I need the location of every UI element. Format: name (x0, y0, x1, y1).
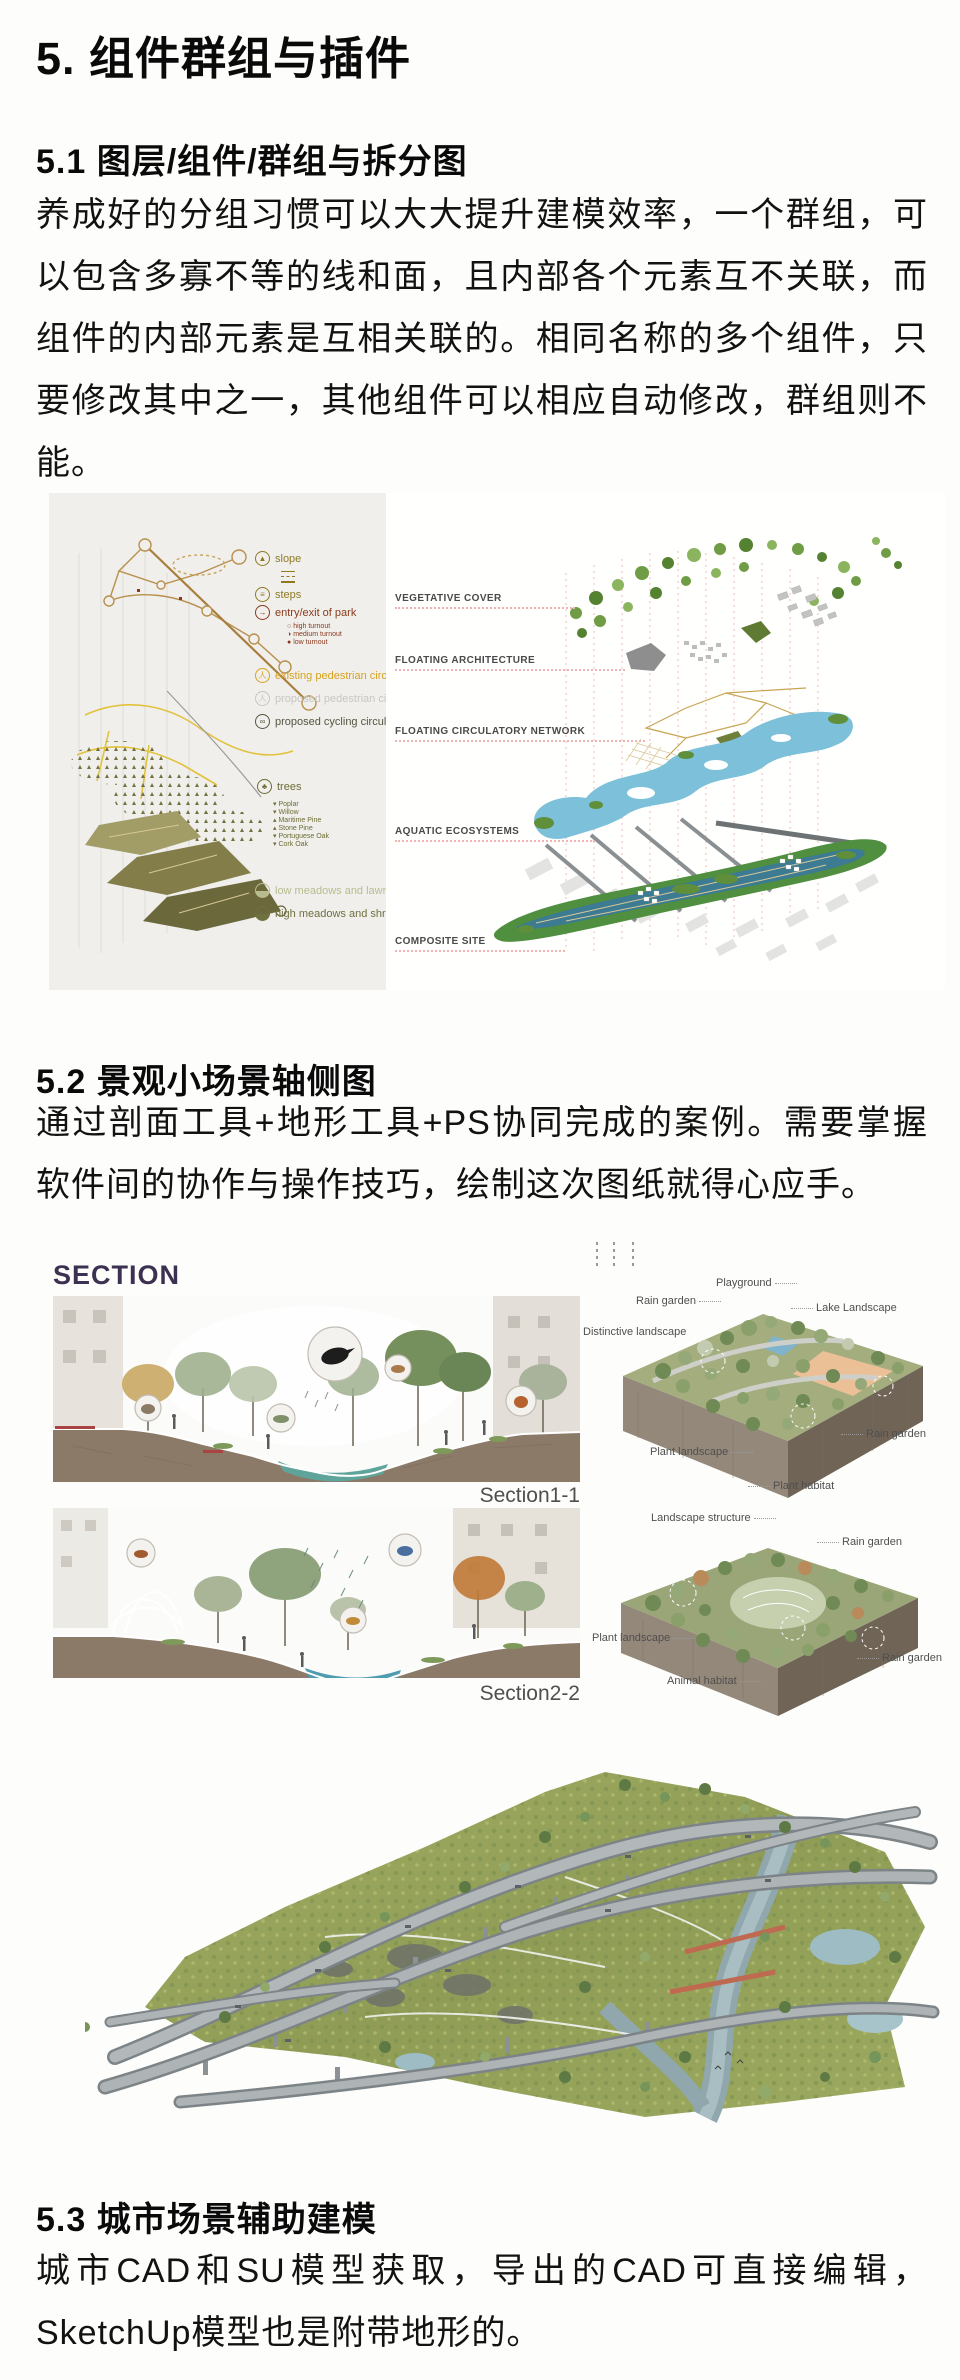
dotted-mark (632, 1242, 634, 1268)
layer-label-vegetative-cover: VEGETATIVE COVER (395, 593, 502, 604)
label-plant-habitat: Plant habitat (745, 1480, 834, 1492)
layer-label-composite-site: COMPOSITE SITE (395, 936, 486, 947)
leader-dots (731, 1452, 753, 1453)
label-plant-landscape: Plant landscape (650, 1446, 756, 1458)
legend-item-low-meadows: low meadows and lawns (255, 883, 394, 898)
section-53-title: 5.3 城市场景辅助建模 (36, 2192, 377, 2241)
label-landscape-structure: Landscape structure (651, 1512, 779, 1524)
legend-species-poplar: ▾ Poplar (273, 801, 299, 809)
pedestrian-icon: 人 (255, 668, 270, 683)
label-rain-garden: Rain garden (636, 1295, 724, 1307)
figure-section-drawings[interactable]: SECTION (53, 1240, 945, 1718)
label-plant-landscape: Plant landscape (592, 1632, 698, 1644)
bicycle-icon: ∞ (255, 714, 270, 729)
label-rain-garden: Rain garden (854, 1652, 942, 1664)
legend-species-maritime-pine: ▴ Maritime Pine (273, 817, 321, 825)
legend-species-stone-pine: ▴ Stone Pine (273, 825, 313, 833)
label-lake-landscape: Lake Landscape (788, 1302, 897, 1314)
legend-turnout-medium: ◑ medium turnout (287, 631, 342, 639)
legend-item-slope: ▲ slope (255, 551, 301, 566)
label-animal-habitat: Animal habitat (667, 1675, 765, 1687)
steps-icon: ≡ (255, 587, 270, 602)
section-51-title: 5.1 图层/组件/群组与拆分图 (36, 134, 468, 183)
slope-grade-mark (281, 581, 295, 583)
label-distinctive-landscape: Distinctive landscape (583, 1326, 686, 1338)
section-53-paragraph: 城市CAD和SU模型获取，导出的CAD可直接编辑，SketchUp模型也是附带地… (36, 2240, 928, 2364)
figure-highway-interchange[interactable] (85, 1757, 945, 2147)
leader-dots (841, 1434, 863, 1435)
pedestrian-icon: 人 (255, 691, 270, 706)
section-1-1-caption: Section1-1 (413, 1484, 580, 1508)
legend-species-cork-oak: ▾ Cork Oak (273, 841, 308, 849)
layer-label-floating-circulatory-network: FLOATING CIRCULATORY NETWORK (395, 726, 585, 737)
legend-turnout-low: ● low turnout (287, 639, 327, 647)
legend-item-high-meadows: high meadows and shrubs (255, 906, 403, 921)
leader-dots (673, 1638, 695, 1639)
meadow-icon (255, 883, 270, 898)
dotted-mark (613, 1242, 615, 1268)
leader-dots (748, 1486, 770, 1487)
legend-item-entry-exit: → entry/exit of park (255, 605, 356, 620)
label-playground: Playground (716, 1277, 800, 1289)
leader-line (395, 950, 565, 952)
slope-grade-mark (281, 576, 295, 577)
leader-dots (775, 1283, 797, 1284)
tree-icon: ♣ (257, 779, 272, 794)
slope-grade-mark (281, 571, 295, 572)
section-52-paragraph: 通过剖面工具+地形工具+PS协同完成的案例。需要掌握软件间的协作与操作技巧，绘制… (36, 1092, 928, 1216)
section-2-2-art (53, 1508, 580, 1678)
leader-line (395, 740, 645, 742)
label-rain-garden: Rain garden (838, 1428, 926, 1440)
entry-arrow-icon: → (255, 605, 270, 620)
figure-exploded-axon[interactable]: ▲ slope ≡ steps → entry/exit of park ○ h… (49, 493, 945, 990)
layer-label-aquatic-ecosystems: AQUATIC ECOSYSTEMS (395, 826, 519, 837)
legend-species-portuguese-oak: ▾ Portuguese Oak (273, 833, 329, 841)
label-rain-garden: Rain garden (814, 1536, 902, 1548)
legend-item-trees: ♣ trees (257, 779, 301, 794)
leader-dots (791, 1308, 813, 1309)
figure1-left-panel: ▲ slope ≡ steps → entry/exit of park ○ h… (49, 493, 386, 990)
legend-turnout-high: ○ high turnout (287, 623, 330, 631)
figure1-right-panel: VEGETATIVE COVER FLOATING ARCHITECTURE F… (386, 493, 945, 990)
leader-line (395, 840, 595, 842)
legend-species-willow: ▾ Willow (273, 809, 299, 817)
shrub-icon (255, 906, 270, 921)
article-page: 5. 组件群组与插件 5.1 图层/组件/群组与拆分图 养成好的分组习惯可以大大… (0, 0, 960, 2380)
section-1-1-art (53, 1296, 580, 1482)
slope-icon: ▲ (255, 551, 270, 566)
leader-line (395, 669, 625, 671)
leader-dots (740, 1681, 762, 1682)
dotted-mark (596, 1242, 598, 1268)
leader-line (395, 607, 575, 609)
leader-dots (754, 1518, 776, 1519)
legend-item-steps: ≡ steps (255, 587, 301, 602)
page-title: 5. 组件群组与插件 (36, 22, 411, 87)
layer-label-floating-architecture: FLOATING ARCHITECTURE (395, 655, 535, 666)
section-51-paragraph: 养成好的分组习惯可以大大提升建模效率，一个群组，可以包含多寡不等的线和面，且内部… (36, 184, 928, 494)
figure2-title: SECTION (53, 1260, 180, 1291)
leader-dots (857, 1658, 879, 1659)
leader-dots (699, 1301, 721, 1302)
section-2-2-caption: Section2-2 (413, 1682, 580, 1706)
leader-dots (817, 1542, 839, 1543)
